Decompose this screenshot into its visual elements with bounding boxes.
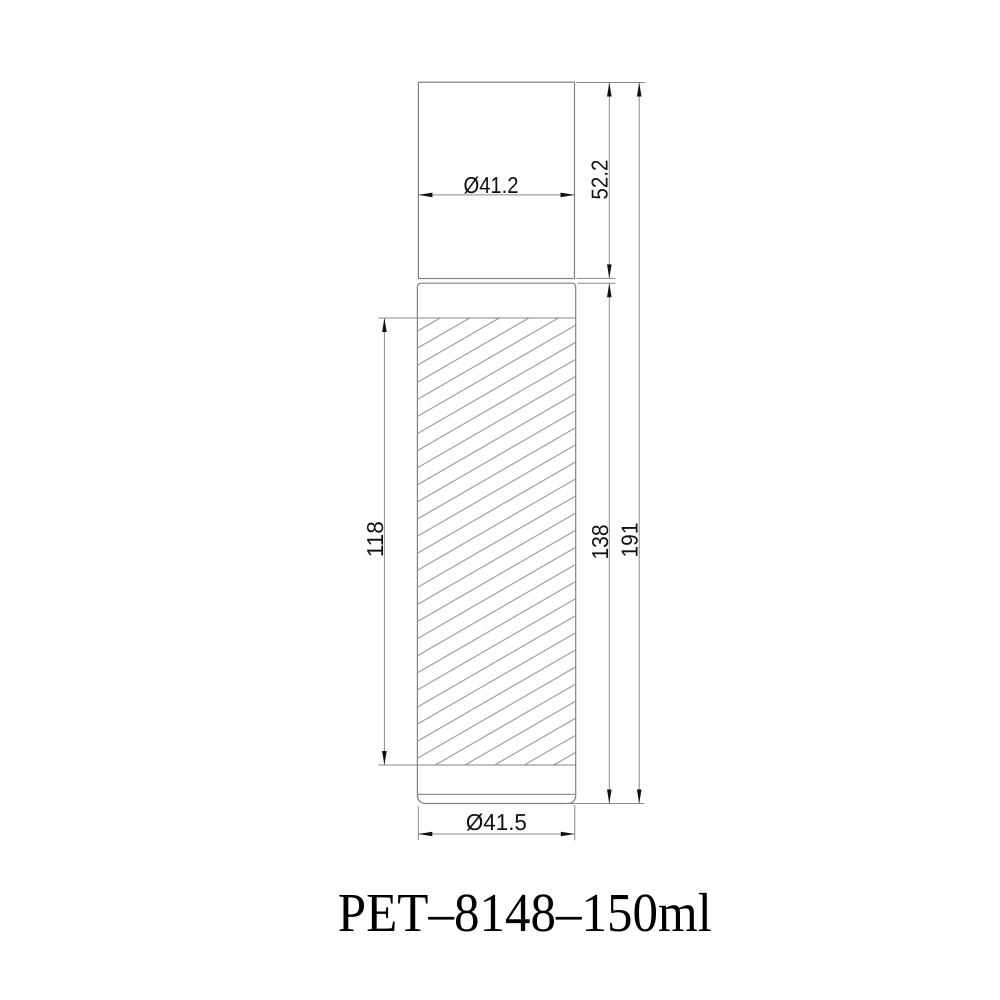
svg-text:191: 191 (617, 523, 643, 558)
svg-text:Ø41.2: Ø41.2 (464, 172, 519, 198)
svg-text:52.2: 52.2 (587, 160, 613, 200)
svg-text:Ø41.5: Ø41.5 (466, 809, 527, 835)
svg-text:PET–8148–150ml: PET–8148–150ml (338, 882, 712, 943)
svg-text:138: 138 (587, 525, 613, 560)
svg-text:118: 118 (362, 521, 388, 557)
